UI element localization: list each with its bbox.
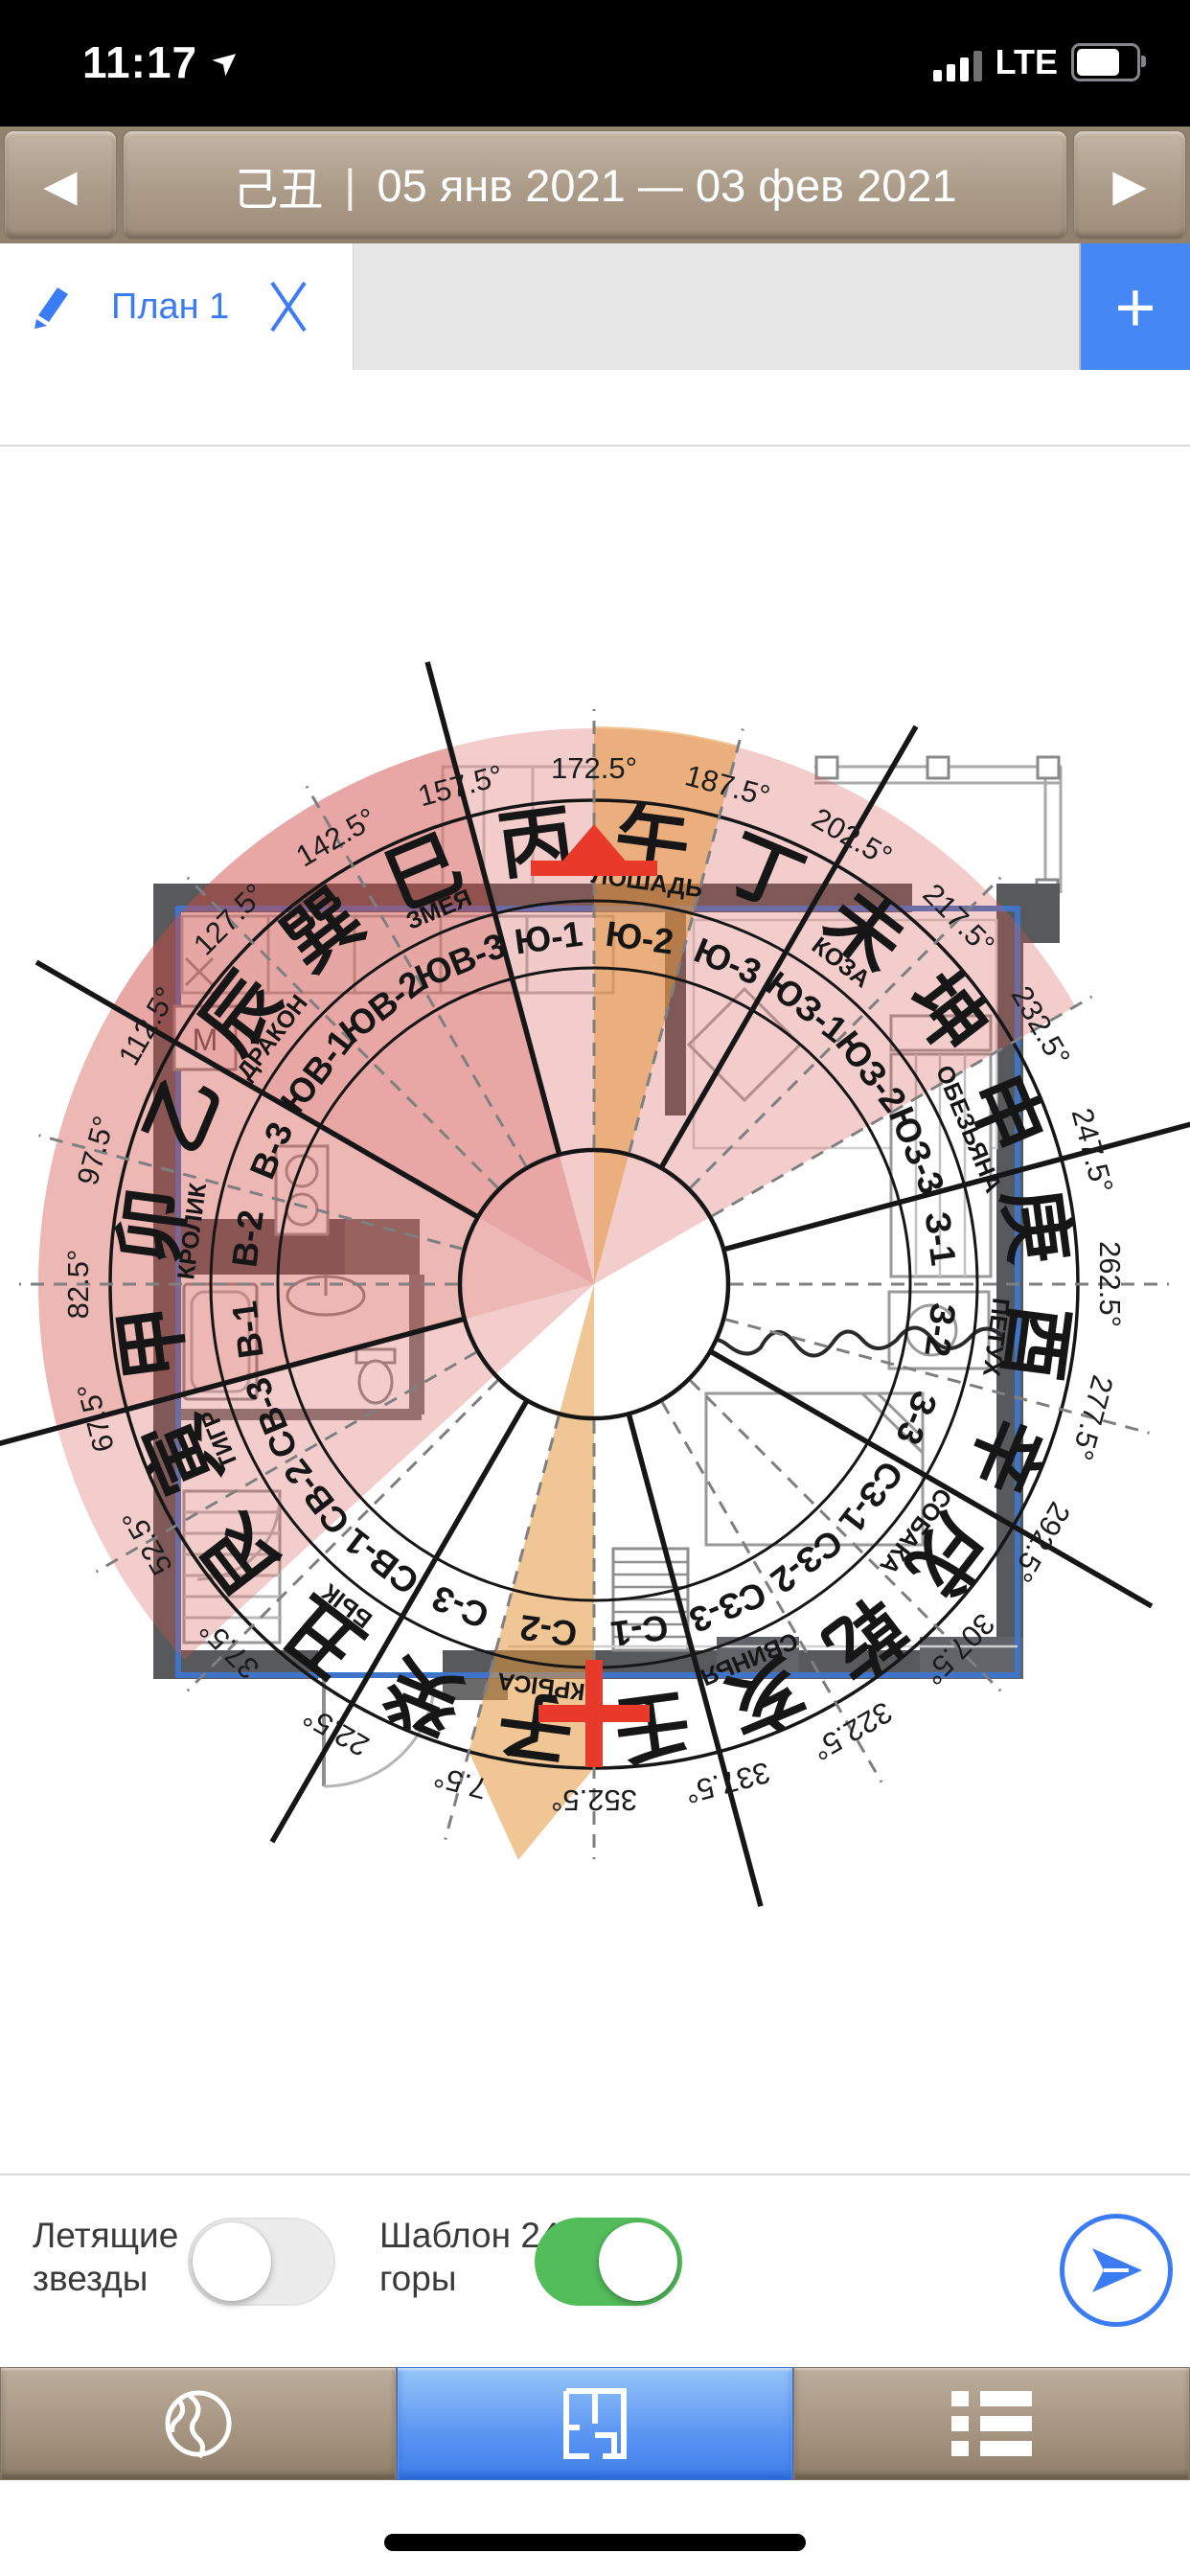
svg-text:127.5°: 127.5°: [187, 877, 271, 961]
svg-text:202.5°: 202.5°: [807, 801, 898, 873]
period-header: ◀ 己丑 | 05 янв 2021 — 03 фев 2021 ▶: [0, 126, 1190, 243]
living-room: [508, 920, 1018, 1650]
bed: [706, 1393, 923, 1545]
svg-text:酉: 酉: [989, 1299, 1082, 1385]
home-indicator[interactable]: [384, 2534, 806, 2551]
svg-text:ЮВ-3: ЮВ-3: [409, 926, 511, 998]
svg-text:КРОЛИК: КРОЛИК: [172, 1181, 212, 1281]
previous-period-button[interactable]: ◀: [4, 130, 117, 240]
svg-text:187.5°: 187.5°: [681, 758, 773, 813]
svg-text:ЛОШАДЬ: ЛОШАДЬ: [589, 862, 704, 903]
radiator: [613, 1549, 688, 1650]
chevron-right-icon: ▶: [1112, 159, 1146, 211]
svg-text:未: 未: [810, 874, 920, 986]
svg-text:37.5°: 37.5°: [193, 1613, 265, 1686]
edit-pencil-icon[interactable]: [27, 283, 75, 331]
svg-text:СВИНЬЯ: СВИНЬЯ: [697, 1626, 802, 1690]
svg-text:ЗМЕЯ: ЗМЕЯ: [402, 885, 475, 935]
svg-text:ЮВ-1: ЮВ-1: [273, 1023, 361, 1121]
svg-text:СВ-1: СВ-1: [336, 1521, 425, 1602]
svg-text:壬: 壬: [609, 1679, 695, 1772]
svg-text:乙: 乙: [129, 1063, 236, 1164]
svg-text:В-3: В-3: [242, 1116, 301, 1184]
template-24-toggle[interactable]: [535, 2218, 682, 2306]
svg-text:БЫК: БЫК: [316, 1577, 377, 1633]
svg-text:巳: 巳: [373, 819, 474, 926]
period-date-range: 05 янв 2021 — 03 фев 2021: [378, 159, 957, 212]
svg-text:辛: 辛: [952, 1404, 1059, 1506]
toggle-knob: [193, 2222, 271, 2301]
svg-text:З-1: З-1: [917, 1209, 963, 1268]
tab-label: План 1: [111, 287, 229, 328]
bottom-controls: Летящие звезды Шаблон 24 горы: [0, 2175, 1190, 2367]
svg-text:庚: 庚: [989, 1184, 1082, 1269]
share-button[interactable]: [1060, 2214, 1173, 2327]
svg-text:217.5°: 217.5°: [917, 877, 1001, 961]
compass-dial: 7.5°22.5°37.5°52.5°67.5°82.5°97.5°112.5°…: [0, 662, 1190, 1906]
svg-text:子: 子: [493, 1679, 579, 1772]
plus-icon: +: [1114, 266, 1156, 348]
svg-text:247.5°: 247.5°: [1065, 1105, 1120, 1197]
walls: [153, 884, 1060, 1700]
svg-text:52.5°: 52.5°: [115, 1504, 179, 1580]
svg-text:ОБЕЗЬЯНА: ОБЕЗЬЯНА: [930, 1062, 1007, 1197]
svg-text:СЗ-1: СЗ-1: [832, 1454, 911, 1540]
svg-text:157.5°: 157.5°: [415, 758, 507, 813]
svg-text:卯: 卯: [105, 1184, 198, 1269]
svg-text:Ю-2: Ю-2: [604, 914, 676, 962]
chevron-left-icon: ◀: [43, 159, 77, 211]
svg-text:ДРАКОН: ДРАКОН: [232, 990, 313, 1085]
svg-text:戌: 戌: [891, 1500, 1003, 1610]
svg-text:亥: 亥: [714, 1643, 815, 1749]
sofa-squiggle: [623, 1327, 1002, 1374]
svg-text:172.5°: 172.5°: [551, 751, 637, 785]
svg-text:112.5°: 112.5°: [112, 981, 183, 1070]
svg-text:З-2: З-2: [917, 1300, 963, 1359]
battery-icon: [1071, 43, 1140, 81]
shaft-outline: [443, 767, 594, 887]
svg-text:22.5°: 22.5°: [298, 1699, 375, 1763]
svg-text:277.5°: 277.5°: [1065, 1371, 1120, 1463]
svg-text:巽: 巽: [267, 874, 378, 986]
svg-text:7.5°: 7.5°: [430, 1759, 491, 1805]
hallway: [184, 1491, 435, 1786]
period-separator: |: [344, 159, 355, 212]
period-display[interactable]: 己丑 | 05 янв 2021 — 03 фев 2021: [123, 130, 1067, 240]
top-divider: [0, 445, 1190, 447]
flying-stars-toggle[interactable]: [188, 2218, 335, 2306]
svg-text:ЮЗ-1: ЮЗ-1: [759, 964, 855, 1050]
svg-text:甲: 甲: [105, 1299, 198, 1385]
svg-text:КОЗА: КОЗА: [807, 931, 875, 993]
svg-text:乾: 乾: [810, 1581, 920, 1693]
toolbar-list-button[interactable]: [793, 2367, 1190, 2480]
svg-text:申: 申: [952, 1063, 1059, 1164]
list-icon: [951, 2389, 1032, 2458]
svg-text:ЮВ-2: ЮВ-2: [332, 963, 431, 1051]
tab-plan-1[interactable]: План 1: [0, 243, 353, 370]
svg-text:337.5°: 337.5°: [681, 1756, 773, 1810]
svg-text:307.5°: 307.5°: [917, 1607, 1001, 1691]
period-hanzi: 己丑: [233, 152, 323, 218]
plan-tab-bar: План 1 +: [0, 243, 1190, 370]
apartment-outline: [178, 908, 1018, 1675]
svg-text:Ю-1: Ю-1: [513, 914, 585, 962]
svg-text:142.5°: 142.5°: [290, 801, 381, 873]
location-arrow-icon: ➤: [203, 38, 249, 85]
globe-icon: [161, 2386, 236, 2461]
floor-plan: М: [153, 757, 1062, 1786]
add-plan-button[interactable]: +: [1081, 243, 1190, 370]
svg-text:67.5°: 67.5°: [71, 1380, 122, 1456]
svg-text:82.5°: 82.5°: [61, 1250, 95, 1320]
svg-text:97.5°: 97.5°: [71, 1113, 122, 1188]
cellular-signal-icon: [933, 43, 982, 81]
floor-plan-icon: [557, 2385, 633, 2462]
svg-text:癸: 癸: [373, 1643, 474, 1749]
svg-text:寅: 寅: [129, 1404, 236, 1506]
svg-text:СЗ-2: СЗ-2: [764, 1522, 850, 1601]
svg-text:СВ-3: СВ-3: [238, 1372, 306, 1463]
svg-text:СОБАКА: СОБАКА: [874, 1483, 956, 1579]
network-type-label: LTE: [995, 42, 1058, 82]
svg-text:ЮЗ-2: ЮЗ-2: [828, 1023, 914, 1119]
svg-text:丙: 丙: [493, 795, 579, 888]
toolbar-globe-button[interactable]: [0, 2367, 397, 2480]
svg-text:З-3: З-3: [888, 1386, 945, 1450]
svg-text:СЗ-3: СЗ-3: [684, 1574, 772, 1640]
svg-text:262.5°: 262.5°: [1093, 1241, 1127, 1327]
svg-text:午: 午: [609, 795, 695, 888]
svg-text:352.5°: 352.5°: [551, 1783, 637, 1817]
svg-text:С-3: С-3: [426, 1577, 494, 1636]
svg-text:坤: 坤: [891, 957, 1003, 1068]
svg-text:С-1: С-1: [608, 1607, 670, 1653]
status-bar: 11:17 ➤ LTE: [0, 0, 1190, 126]
bathroom: [184, 1275, 395, 1403]
svg-text:В-2: В-2: [224, 1207, 270, 1269]
svg-text:ТИГР: ТИГР: [195, 1406, 243, 1473]
close-tab-icon[interactable]: [269, 280, 308, 333]
paper-plane-icon: [1087, 2241, 1146, 2300]
svg-text:丑: 丑: [267, 1581, 378, 1693]
svg-text:322.5°: 322.5°: [807, 1695, 898, 1767]
svg-text:КРЫСА: КРЫСА: [495, 1667, 586, 1706]
next-period-button[interactable]: ▶: [1073, 130, 1186, 240]
svg-text:Ю-3: Ю-3: [689, 931, 767, 993]
svg-text:232.5°: 232.5°: [1005, 980, 1077, 1071]
svg-text:ЮЗ-3: ЮЗ-3: [881, 1101, 952, 1200]
balcony-railing: [814, 757, 1062, 901]
svg-text:辰: 辰: [184, 957, 296, 1068]
svg-text:ПЕТУХ: ПЕТУХ: [977, 1297, 1015, 1378]
toggle-knob: [599, 2222, 677, 2301]
clock: 11:17: [82, 36, 197, 88]
svg-text:艮: 艮: [184, 1500, 297, 1611]
svg-text:В-1: В-1: [224, 1299, 270, 1360]
svg-text:СВ-2: СВ-2: [276, 1452, 357, 1541]
washer-label: М: [193, 1023, 218, 1057]
svg-text:292.5°: 292.5°: [1005, 1497, 1077, 1588]
svg-text:С-2: С-2: [517, 1607, 579, 1653]
main-toolbar: [0, 2367, 1190, 2480]
kitchen: [174, 916, 613, 1234]
toolbar-floor-plan-button[interactable]: [397, 2367, 793, 2480]
svg-text:丁: 丁: [714, 819, 815, 926]
